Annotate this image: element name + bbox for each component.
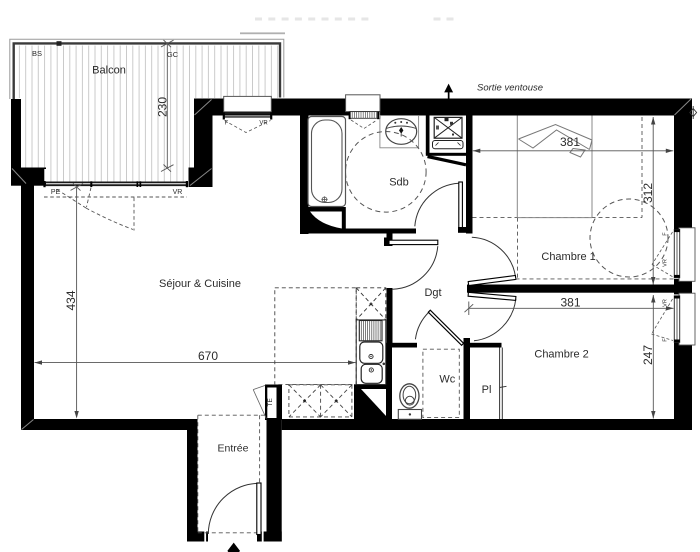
svg-text:TE: TE bbox=[267, 397, 274, 406]
svg-text:Chambre 1: Chambre 1 bbox=[541, 251, 595, 263]
svg-text:434: 434 bbox=[64, 290, 78, 310]
svg-text:Sdb: Sdb bbox=[389, 177, 409, 189]
svg-text:VR: VR bbox=[663, 259, 669, 267]
svg-text:BS: BS bbox=[32, 49, 42, 58]
svg-text:Wc: Wc bbox=[439, 374, 455, 386]
svg-text:Pl: Pl bbox=[482, 384, 492, 396]
svg-text:312: 312 bbox=[641, 183, 655, 203]
svg-text:230: 230 bbox=[155, 97, 169, 117]
svg-text:381: 381 bbox=[560, 135, 580, 149]
svg-text:VR: VR bbox=[173, 189, 183, 196]
svg-text:247: 247 bbox=[641, 345, 655, 365]
svg-text:Séjour & Cuisine: Séjour & Cuisine bbox=[159, 278, 241, 290]
svg-text:Chambre 2: Chambre 2 bbox=[534, 349, 588, 361]
svg-text:Dgt: Dgt bbox=[424, 287, 441, 299]
svg-text:GC: GC bbox=[167, 50, 179, 59]
svg-text:381: 381 bbox=[560, 295, 580, 309]
svg-text:Balcon: Balcon bbox=[92, 65, 126, 77]
svg-text:670: 670 bbox=[198, 349, 218, 363]
svg-text:PE: PE bbox=[51, 189, 61, 196]
svg-text:VR: VR bbox=[663, 299, 669, 307]
svg-text:Sortie ventouse: Sortie ventouse bbox=[477, 83, 543, 94]
svg-text:Entrée: Entrée bbox=[218, 443, 249, 455]
